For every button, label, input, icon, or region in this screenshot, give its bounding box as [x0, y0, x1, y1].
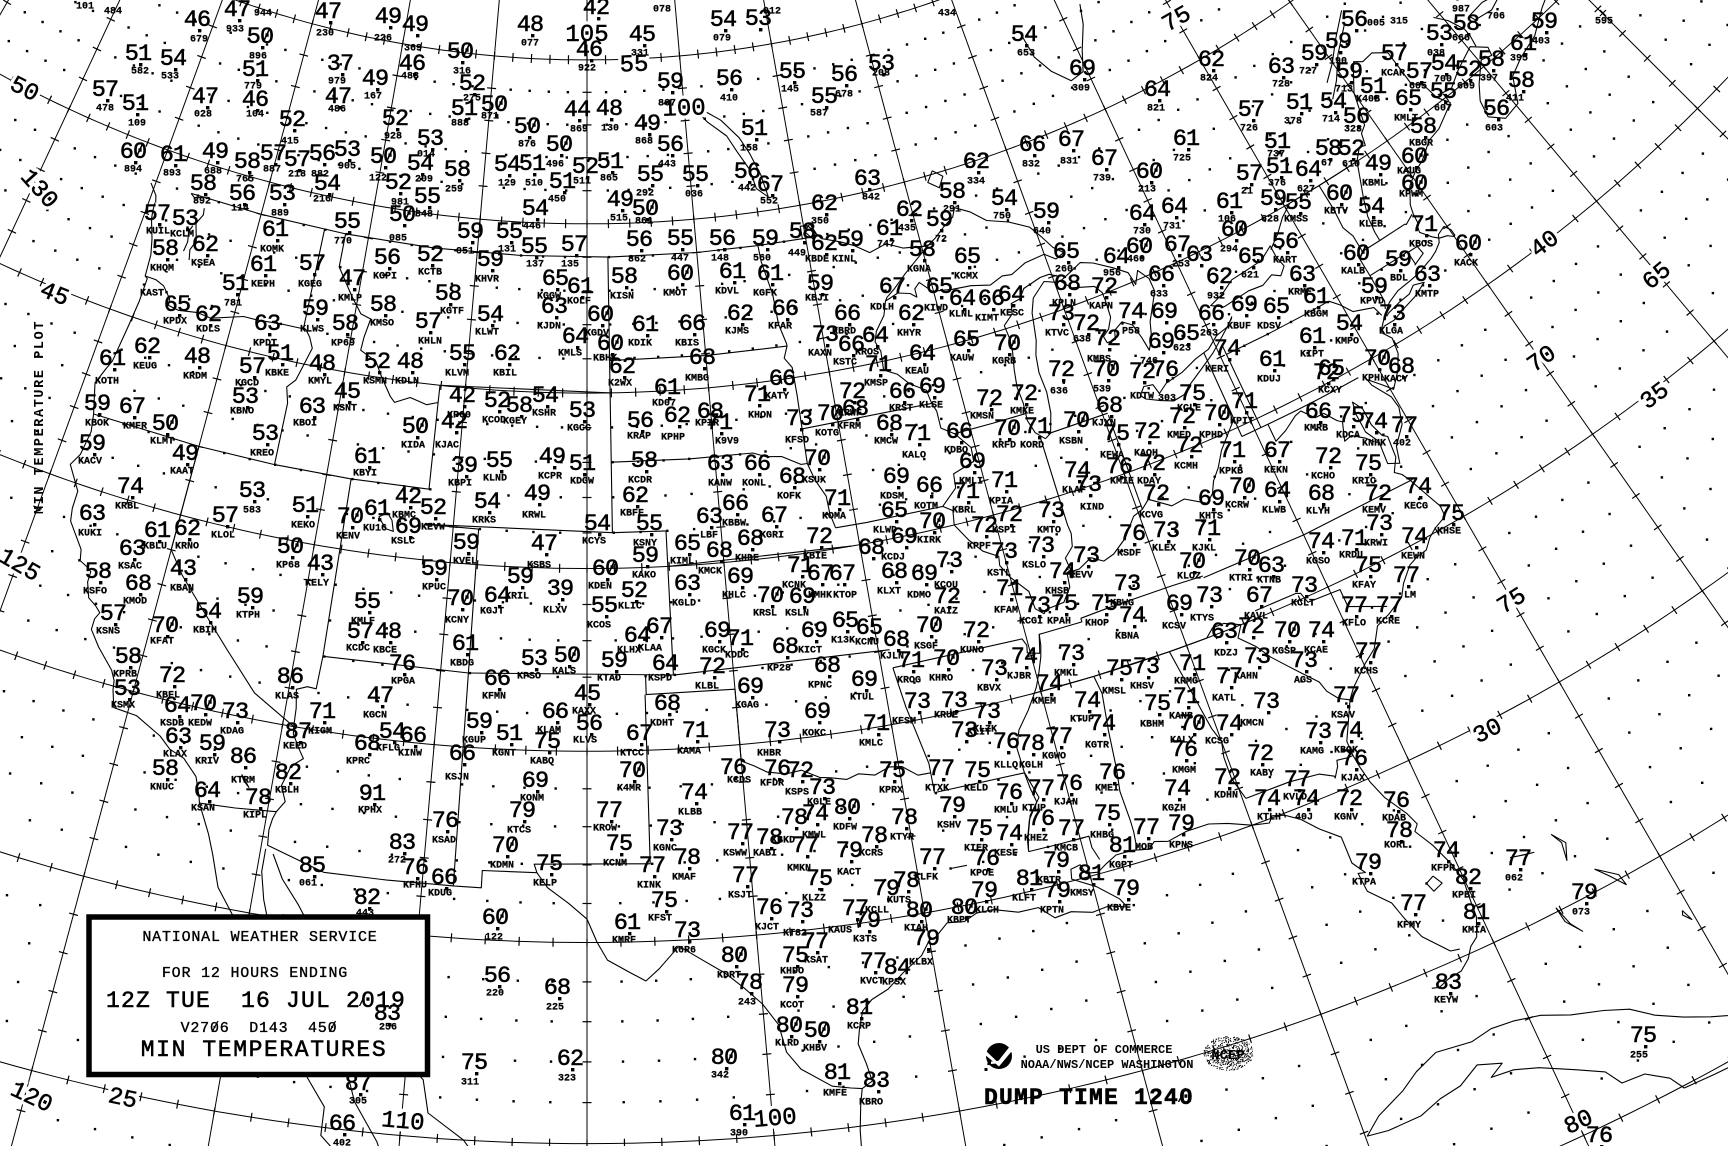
svg-text:54: 54 — [477, 302, 504, 329]
svg-text:633: 633 — [1150, 290, 1168, 301]
svg-text:59: 59 — [657, 69, 684, 96]
svg-text:KGNT: KGNT — [492, 749, 516, 760]
svg-text:74: 74 — [1308, 529, 1335, 556]
svg-text:KMIA: KMIA — [1462, 926, 1486, 937]
svg-text:KRST: KRST — [889, 404, 913, 415]
svg-text:KMSN: KMSN — [970, 412, 994, 423]
svg-text:KRIL: KRIL — [505, 592, 529, 603]
svg-text:KTRI: KTRI — [1229, 574, 1253, 585]
svg-text:KTAD: KTAD — [597, 674, 621, 685]
svg-text:KMBG: KMBG — [685, 374, 709, 385]
svg-text:KSAN: KSAN — [191, 804, 215, 815]
svg-text:KBGM: KBGM — [1304, 310, 1328, 321]
svg-text:KTVC: KTVC — [1045, 329, 1069, 340]
svg-text:KGRB: KGRB — [992, 357, 1016, 368]
svg-text:979: 979 — [328, 77, 346, 88]
svg-text:77: 77 — [1505, 846, 1532, 873]
svg-text:KIAH: KIAH — [904, 924, 928, 935]
svg-text:KEVV: KEVV — [1069, 571, 1093, 582]
svg-text:038: 038 — [1427, 49, 1445, 60]
svg-text:KEUG: KEUG — [133, 362, 157, 373]
svg-text:KELY: KELY — [305, 579, 329, 590]
svg-text:KDEN: KDEN — [588, 582, 612, 593]
svg-text:KBGR: KBGR — [1409, 139, 1433, 150]
svg-text:862: 862 — [628, 255, 646, 266]
svg-text:KMEI: KMEI — [1095, 784, 1119, 795]
svg-text:KRWF: KRWF — [838, 409, 862, 420]
svg-text:640: 640 — [1033, 227, 1051, 238]
svg-text:68: 68 — [1308, 481, 1335, 508]
svg-text:P58: P58 — [1122, 327, 1140, 338]
svg-text:KRDU: KRDU — [1339, 551, 1363, 562]
svg-text:275: 275 — [463, 94, 481, 105]
svg-text:74: 74 — [1308, 618, 1335, 645]
svg-text:86: 86 — [277, 664, 304, 691]
svg-text:KBRD: KBRD — [832, 327, 856, 338]
svg-text:66: 66 — [542, 699, 569, 726]
svg-text:81: 81 — [824, 1060, 851, 1087]
svg-text:49: 49 — [362, 66, 389, 93]
svg-text:54: 54 — [522, 196, 549, 223]
svg-text:55: 55 — [354, 589, 381, 616]
svg-text:KCTB: KCTB — [418, 268, 442, 279]
svg-text:KBBW: KBBW — [722, 519, 746, 530]
svg-text:71: 71 — [863, 711, 890, 738]
svg-text:486: 486 — [328, 105, 346, 116]
svg-text:KAUW: KAUW — [950, 354, 974, 365]
svg-text:KSWW: KSWW — [723, 849, 747, 860]
svg-text:781: 781 — [224, 299, 242, 310]
svg-text:47: 47 — [192, 84, 219, 111]
svg-text:KT82: KT82 — [783, 929, 807, 940]
svg-text:65: 65 — [954, 244, 981, 271]
svg-text:77: 77 — [1333, 683, 1360, 710]
svg-text:331: 331 — [631, 49, 649, 60]
svg-text:KTCC: KTCC — [620, 749, 644, 760]
svg-text:75: 75 — [606, 831, 633, 858]
svg-text:KEKN: KEKN — [1264, 466, 1288, 477]
svg-text:KMCK: KMCK — [698, 567, 722, 578]
svg-text:77: 77 — [1133, 815, 1160, 842]
svg-text:KIWD: KIWD — [924, 304, 948, 315]
svg-text:76: 76 — [432, 808, 459, 835]
svg-text:46: 46 — [576, 37, 603, 64]
svg-text:KGPI: KGPI — [373, 272, 397, 283]
svg-text:KGZH: KGZH — [1162, 804, 1186, 815]
svg-text:KPRC: KPRC — [346, 757, 370, 768]
svg-text:US DEPT OF COMMERCE: US DEPT OF COMMERCE — [1036, 1043, 1173, 1057]
svg-text:KRSL: KRSL — [753, 609, 777, 620]
svg-text:73: 73 — [974, 699, 1001, 726]
svg-text:KOTM: KOTM — [914, 502, 938, 513]
svg-text:67: 67 — [1058, 127, 1085, 154]
svg-text:73: 73 — [1028, 533, 1055, 560]
svg-text:46: 46 — [184, 7, 211, 34]
svg-text:57: 57 — [299, 251, 326, 278]
svg-text:496: 496 — [546, 160, 564, 171]
svg-text:73: 73 — [656, 816, 683, 843]
svg-text:KDLH: KDLH — [870, 303, 894, 314]
svg-text:71: 71 — [309, 699, 336, 726]
svg-text:KTUP: KTUP — [1022, 804, 1046, 815]
svg-text:75: 75 — [1144, 691, 1171, 718]
svg-text:842: 842 — [862, 193, 880, 204]
svg-text:KD07: KD07 — [652, 399, 676, 410]
svg-text:KPPF: KPPF — [967, 542, 991, 553]
svg-text:67: 67 — [1246, 583, 1273, 610]
svg-text:59: 59 — [1033, 199, 1060, 226]
svg-text:848: 848 — [415, 210, 433, 221]
svg-text:KVCT: KVCT — [860, 977, 884, 988]
svg-text:KINW: KINW — [398, 749, 422, 760]
svg-text:KFWA: KFWA — [1100, 451, 1124, 462]
svg-text:57: 57 — [561, 232, 588, 259]
svg-text:595: 595 — [1595, 17, 1613, 28]
svg-text:104: 104 — [246, 110, 264, 121]
svg-text:KDUJ: KDUJ — [1257, 375, 1281, 386]
svg-text:79: 79 — [1355, 850, 1382, 877]
svg-text:73: 73 — [1196, 583, 1223, 610]
svg-text:932: 932 — [1207, 292, 1225, 303]
svg-text:896: 896 — [249, 52, 267, 63]
svg-text:KAKO: KAKO — [632, 571, 656, 582]
svg-text:KDBQ: KDBQ — [944, 446, 968, 457]
svg-text:58: 58 — [444, 157, 471, 184]
svg-text:122: 122 — [369, 174, 387, 185]
svg-text:KDHT: KDHT — [650, 719, 674, 730]
svg-text:MIN TEMPERATURES: MIN TEMPERATURES — [141, 1037, 387, 1063]
svg-text:323: 323 — [558, 1074, 576, 1085]
svg-text:KAAT: KAAT — [170, 467, 194, 478]
svg-text:56: 56 — [626, 227, 653, 254]
svg-text:KBDG: KBDG — [450, 659, 474, 670]
svg-text:68: 68 — [772, 634, 799, 661]
svg-text:74: 74 — [1164, 776, 1191, 803]
svg-text:KBIE: KBIE — [803, 552, 827, 563]
svg-text:53: 53 — [252, 421, 279, 448]
svg-text:342: 342 — [711, 1071, 729, 1082]
svg-text:KSNY: KSNY — [633, 539, 657, 550]
svg-text:69: 69 — [737, 674, 764, 701]
svg-text:74: 74 — [996, 821, 1023, 848]
svg-text:KEYW: KEYW — [1434, 996, 1458, 1007]
svg-text:75: 75 — [964, 758, 991, 785]
svg-text:KENV: KENV — [336, 532, 360, 543]
svg-text:58: 58 — [435, 281, 462, 308]
svg-text:005: 005 — [1367, 19, 1385, 30]
svg-text:KHLC: KHLC — [722, 591, 746, 602]
svg-text:KCOS: KCOS — [587, 621, 611, 632]
svg-text:54: 54 — [160, 46, 187, 73]
svg-text:56: 56 — [657, 132, 684, 159]
svg-text:KDAG: KDAG — [220, 727, 244, 738]
svg-text:KLMT: KLMT — [150, 437, 174, 448]
svg-text:KOLF: KOLF — [567, 297, 591, 308]
svg-text:75: 75 — [1094, 801, 1121, 828]
svg-text:KBNO: KBNO — [230, 407, 254, 418]
svg-text:KUIL: KUIL — [146, 227, 170, 238]
svg-text:861: 861 — [635, 217, 653, 228]
svg-text:309: 309 — [1072, 84, 1090, 95]
svg-text:83: 83 — [1435, 970, 1462, 997]
svg-text:230: 230 — [316, 29, 334, 40]
svg-text:KLBB: KLBB — [678, 808, 702, 819]
svg-text:KGPT: KGPT — [1109, 861, 1133, 872]
svg-text:KONL: KONL — [742, 479, 766, 490]
svg-text:KLYH: KLYH — [1306, 507, 1330, 518]
svg-text:411: 411 — [1506, 94, 1524, 105]
svg-text:KSAV: KSAV — [1331, 711, 1355, 722]
svg-text:52: 52 — [279, 107, 306, 134]
svg-text:KBKD: KBKD — [771, 836, 795, 847]
svg-text:KHDE: KHDE — [735, 554, 759, 565]
svg-text:KRWL: KRWL — [522, 511, 546, 522]
svg-text:63: 63 — [707, 451, 734, 478]
svg-text:607: 607 — [1434, 104, 1452, 115]
svg-text:49: 49 — [607, 187, 634, 214]
svg-text:KRDM: KRDM — [183, 372, 207, 383]
svg-text:KOFK: KOFK — [777, 492, 801, 503]
svg-text:750: 750 — [993, 212, 1011, 223]
svg-text:71: 71 — [1219, 438, 1246, 465]
svg-text:887: 887 — [263, 165, 281, 176]
svg-text:KSAD: KSAD — [432, 836, 456, 847]
svg-text:66: 66 — [772, 296, 799, 323]
svg-text:KDMN: KDMN — [490, 861, 514, 872]
svg-text:76: 76 — [1119, 521, 1146, 548]
svg-text:66: 66 — [916, 473, 943, 500]
svg-text:KP68: KP68 — [276, 561, 300, 572]
svg-text:KBWG: KBWG — [1110, 599, 1134, 610]
svg-text:59: 59 — [837, 227, 864, 254]
svg-text:74: 74 — [1361, 409, 1388, 436]
svg-text:KSDB: KSDB — [160, 719, 184, 730]
svg-text:KPRB: KPRB — [113, 670, 137, 681]
svg-text:KCMX: KCMX — [954, 272, 978, 283]
svg-text:KFHU: KFHU — [403, 881, 427, 892]
svg-text:82: 82 — [1455, 865, 1482, 892]
svg-text:68: 68 — [125, 571, 152, 598]
svg-text:KTRM: KTRM — [231, 776, 255, 787]
svg-text:63: 63 — [1414, 262, 1441, 289]
svg-text:603: 603 — [1485, 124, 1503, 135]
svg-text:77: 77 — [639, 853, 666, 880]
svg-text:KCAR: KCAR — [1381, 69, 1405, 80]
svg-text:KDIK: KDIK — [628, 339, 652, 350]
svg-text:51: 51 — [496, 721, 523, 748]
svg-text:65: 65 — [1238, 244, 1265, 271]
svg-text:KMLI: KMLI — [959, 477, 983, 488]
svg-text:86: 86 — [230, 744, 257, 771]
svg-text:KSLN: KSLN — [785, 609, 809, 620]
svg-text:415: 415 — [281, 137, 299, 148]
svg-text:72: 72 — [1336, 786, 1363, 813]
svg-text:75: 75 — [1106, 656, 1133, 683]
svg-text:434: 434 — [938, 9, 956, 20]
svg-text:889: 889 — [271, 209, 289, 220]
svg-text:62: 62 — [134, 334, 161, 361]
svg-text:KNUC: KNUC — [150, 783, 174, 794]
svg-text:770: 770 — [334, 237, 352, 248]
svg-text:56: 56 — [709, 226, 736, 253]
svg-text:62: 62 — [1198, 47, 1225, 74]
svg-text:67: 67 — [757, 172, 784, 199]
svg-text:64: 64 — [862, 323, 889, 350]
svg-text:91: 91 — [359, 781, 386, 808]
svg-text:865: 865 — [600, 174, 618, 185]
svg-text:49: 49 — [172, 441, 199, 468]
svg-text:KMEM: KMEM — [1032, 697, 1056, 708]
svg-text:KDAY: KDAY — [1137, 477, 1161, 488]
svg-text:77: 77 — [1355, 639, 1382, 666]
svg-text:KHSE: KHSE — [1437, 527, 1461, 538]
svg-text:610: 610 — [1342, 160, 1360, 171]
svg-text:62: 62 — [174, 516, 201, 543]
svg-text:21: 21 — [1241, 187, 1253, 198]
svg-text:59: 59 — [457, 219, 484, 246]
svg-text:KACY: KACY — [1384, 375, 1408, 386]
svg-text:KCLT: KCLT — [1291, 599, 1315, 610]
svg-text:KINL: KINL — [832, 255, 856, 266]
svg-text:58: 58 — [939, 179, 966, 206]
svg-text:KTYS: KTYS — [1190, 614, 1214, 625]
svg-text:KGNV: KGNV — [1334, 813, 1358, 824]
svg-text:65: 65 — [1053, 239, 1080, 266]
svg-text:KBTV: KBTV — [1324, 207, 1348, 218]
svg-text:45: 45 — [334, 379, 361, 406]
svg-text:KCVG: KCVG — [1139, 511, 1163, 522]
svg-text:KABI: KABI — [753, 849, 777, 860]
svg-text:KMGM: KMGM — [1172, 766, 1196, 777]
svg-text:68: 68 — [876, 411, 903, 438]
svg-text:KIDA: KIDA — [401, 441, 425, 452]
svg-text:KCNU: KCNU — [855, 638, 879, 649]
svg-text:KDUG: KDUG — [428, 889, 452, 900]
svg-text:KSMN: KSMN — [363, 377, 387, 388]
svg-text:KGFK: KGFK — [753, 289, 777, 300]
svg-text:KMIE: KMIE — [1110, 477, 1134, 488]
svg-text:824: 824 — [1200, 74, 1218, 85]
svg-text:KFLG: KFLG — [376, 744, 400, 755]
svg-text:57: 57 — [239, 354, 266, 381]
svg-text:NOAA/NWS/NCEP WASHINGTON: NOAA/NWS/NCEP WASHINGTON — [1021, 1058, 1194, 1072]
svg-text:63: 63 — [299, 394, 326, 421]
svg-text:66: 66 — [946, 419, 973, 446]
svg-text:73: 73 — [1114, 571, 1141, 598]
svg-text:57: 57 — [92, 77, 119, 104]
svg-text:KCRW: KCRW — [1225, 501, 1249, 512]
svg-text:77: 77 — [1028, 776, 1055, 803]
svg-text:395: 395 — [1510, 54, 1528, 65]
svg-text:410: 410 — [720, 94, 738, 105]
svg-text:KPDT: KPDT — [253, 339, 277, 350]
svg-text:43: 43 — [170, 556, 197, 583]
svg-text:730: 730 — [1133, 227, 1151, 238]
svg-text:61: 61 — [250, 252, 277, 279]
svg-text:NCEP: NCEP — [1211, 1048, 1245, 1064]
svg-text:57: 57 — [1236, 161, 1263, 188]
svg-text:KGNA: KGNA — [907, 265, 931, 276]
svg-text:KPIA: KPIA — [989, 497, 1013, 508]
svg-text:66: 66 — [400, 723, 427, 750]
svg-text:74: 74 — [681, 780, 708, 807]
svg-text:KDDC: KDDC — [725, 651, 749, 662]
svg-text:55: 55 — [591, 593, 618, 620]
svg-text:45: 45 — [629, 22, 656, 49]
svg-text:148: 148 — [711, 254, 729, 265]
svg-text:KBCE: KBCE — [373, 646, 397, 657]
svg-text:KBRO: KBRO — [859, 1098, 883, 1109]
svg-text:KBVE: KBVE — [1107, 904, 1131, 915]
svg-text:73: 73 — [904, 689, 931, 716]
svg-text:67: 67 — [1091, 146, 1118, 173]
svg-text:49: 49 — [1365, 151, 1392, 178]
svg-text:KP69: KP69 — [331, 339, 355, 350]
svg-text:079: 079 — [713, 34, 731, 45]
svg-text:59: 59 — [421, 556, 448, 583]
svg-text:KBIH: KBIH — [193, 626, 217, 637]
svg-text:623: 623 — [1173, 344, 1191, 355]
svg-text:KSLC: KSLC — [391, 537, 415, 548]
svg-text:727: 727 — [1299, 67, 1317, 78]
svg-text:KAIZ: KAIZ — [934, 607, 958, 618]
svg-text:63: 63 — [119, 536, 146, 563]
svg-text:55: 55 — [334, 209, 361, 236]
svg-text:61: 61 — [364, 496, 391, 523]
svg-text:66: 66 — [484, 666, 511, 693]
svg-text:KPHL: KPHL — [1362, 374, 1386, 385]
svg-text:KMSL: KMSL — [1102, 687, 1126, 698]
svg-text:77: 77 — [1391, 413, 1418, 440]
svg-text:67: 67 — [626, 721, 653, 748]
svg-text:KBOS: KBOS — [1409, 240, 1433, 251]
svg-text:KLAX: KLAX — [163, 750, 187, 761]
svg-text:KGLD: KGLD — [672, 599, 696, 610]
svg-text:KTPH: KTPH — [236, 611, 260, 622]
svg-text:832: 832 — [1022, 160, 1040, 171]
svg-text:KHEZ: KHEZ — [1024, 834, 1048, 845]
svg-text:53: 53 — [521, 646, 548, 673]
svg-text:66: 66 — [722, 491, 749, 518]
svg-text:64: 64 — [1295, 157, 1322, 184]
svg-text:43: 43 — [307, 551, 334, 578]
svg-text:073: 073 — [1572, 908, 1590, 919]
svg-text:79: 79 — [939, 793, 966, 820]
svg-text:69: 69 — [522, 768, 549, 795]
svg-text:KLGA: KLGA — [1379, 327, 1403, 338]
svg-text:876: 876 — [518, 140, 536, 151]
svg-text:61: 61 — [1299, 324, 1326, 351]
svg-text:53: 53 — [269, 181, 296, 208]
svg-text:706: 706 — [1487, 12, 1505, 23]
svg-text:72: 72 — [806, 524, 833, 551]
svg-text:KMTO: KMTO — [1037, 526, 1061, 537]
svg-text:KIPT: KIPT — [1300, 350, 1324, 361]
svg-text:KMHK: KMHK — [808, 591, 832, 602]
svg-text:LBF: LBF — [700, 531, 718, 542]
svg-text:KART: KART — [1273, 256, 1297, 267]
svg-text:52: 52 — [364, 349, 391, 376]
svg-text:KMWL: KMWL — [802, 831, 826, 842]
svg-text:KPLN: KPLN — [1052, 299, 1076, 310]
svg-text:130: 130 — [601, 124, 619, 135]
svg-text:KFAY: KFAY — [1352, 581, 1376, 592]
svg-text:KBML: KBML — [1362, 179, 1386, 190]
svg-text:51: 51 — [292, 493, 319, 520]
svg-text:220: 220 — [486, 989, 504, 1000]
svg-text:KUKI: KUKI — [78, 529, 102, 540]
svg-text:73: 73 — [1244, 644, 1271, 671]
